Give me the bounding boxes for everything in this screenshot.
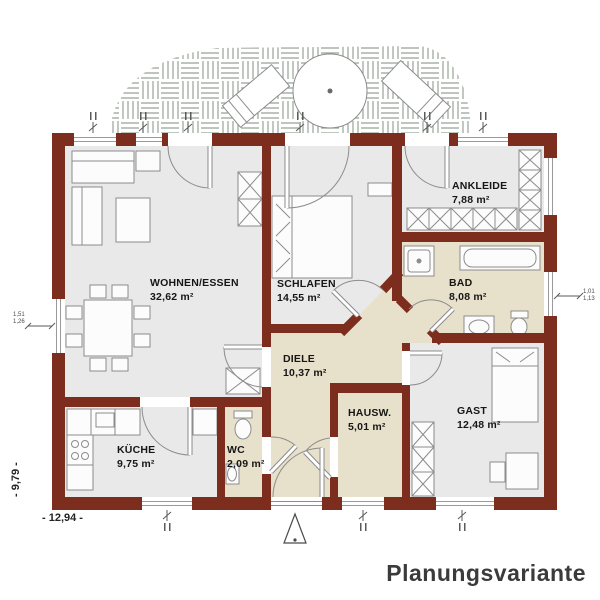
page-title: Planungsvariante	[386, 560, 586, 587]
window-hausw-bottom	[342, 497, 384, 510]
room-name: WOHNEN/ESSEN	[150, 277, 239, 291]
dim-value: 1,26	[13, 319, 25, 326]
dimension-window-left: 1,51 1,26	[13, 312, 25, 325]
dimension-total-height: - 9,79 -	[10, 462, 22, 497]
room-name: HAUSW.	[348, 407, 391, 421]
window-wohnen-2	[136, 133, 162, 146]
dim-marker	[359, 510, 367, 531]
room-name: WC	[227, 444, 265, 458]
floor-plan-page: WOHNEN/ESSEN 32,62 m² SCHLAFEN 14,55 m² …	[0, 0, 600, 600]
window-right-bad	[544, 272, 557, 316]
room-area: 5,01 m²	[348, 421, 391, 435]
room-label-schlafen: SCHLAFEN 14,55 m²	[277, 278, 336, 305]
room-name: KÜCHE	[117, 444, 155, 458]
dim-value: 1,01	[583, 289, 595, 296]
dim-marker-right	[554, 293, 583, 299]
room-area: 2,09 m²	[227, 458, 265, 472]
window-right-ankleide	[544, 158, 557, 215]
room-label-ankleide: ANKLEIDE 7,88 m²	[452, 180, 507, 207]
sofa-group	[72, 151, 160, 245]
floor-hausw	[330, 383, 410, 497]
entrance-arrow-icon	[284, 514, 306, 543]
window-gast-bottom	[436, 497, 494, 510]
toilet-wc	[234, 411, 252, 418]
window-ankleide-top	[458, 133, 508, 146]
dimension-total-width: - 12,94 -	[42, 512, 83, 524]
dim-value: 1,51	[13, 312, 25, 319]
window-kueche-bottom	[142, 497, 192, 510]
dim-marker	[89, 112, 97, 133]
room-label-wc: WC 2,09 m²	[227, 444, 265, 471]
parasol-icon	[293, 54, 367, 128]
dim-marker	[458, 510, 466, 531]
dim-marker	[479, 112, 487, 133]
toilet-bad	[511, 311, 528, 318]
room-label-kueche: KÜCHE 9,75 m²	[117, 444, 155, 471]
room-label-gast: GAST 12,48 m²	[457, 405, 501, 432]
room-label-diele: DIELE 10,37 m²	[283, 353, 327, 380]
window-wohnen-1	[74, 133, 116, 146]
dim-value: 1,13	[583, 296, 595, 303]
room-name: ANKLEIDE	[452, 180, 507, 194]
room-area: 9,75 m²	[117, 458, 155, 472]
room-label-hausw: HAUSW. 5,01 m²	[348, 407, 391, 434]
desk-chair	[490, 462, 505, 482]
room-label-bad: BAD 8,08 m²	[449, 277, 487, 304]
room-name: BAD	[449, 277, 487, 291]
dim-marker-left	[25, 323, 55, 329]
room-area: 14,55 m²	[277, 292, 336, 306]
terrace	[110, 46, 471, 133]
room-name: DIELE	[283, 353, 327, 367]
room-label-wohnen: WOHNEN/ESSEN 32,62 m²	[150, 277, 239, 304]
coffee-table	[116, 198, 150, 242]
room-area: 32,62 m²	[150, 291, 239, 305]
room-area: 12,48 m²	[457, 419, 501, 433]
nightstand	[368, 183, 392, 196]
desk	[506, 453, 538, 489]
room-area: 8,08 m²	[449, 291, 487, 305]
room-name: SCHLAFEN	[277, 278, 336, 292]
room-area: 10,37 m²	[283, 367, 327, 381]
room-name: GAST	[457, 405, 501, 419]
dim-marker	[163, 510, 171, 531]
dimension-window-right: 1,01 1,13	[583, 289, 595, 302]
window-left-wohnen	[52, 299, 65, 353]
room-area: 7,88 m²	[452, 194, 507, 208]
